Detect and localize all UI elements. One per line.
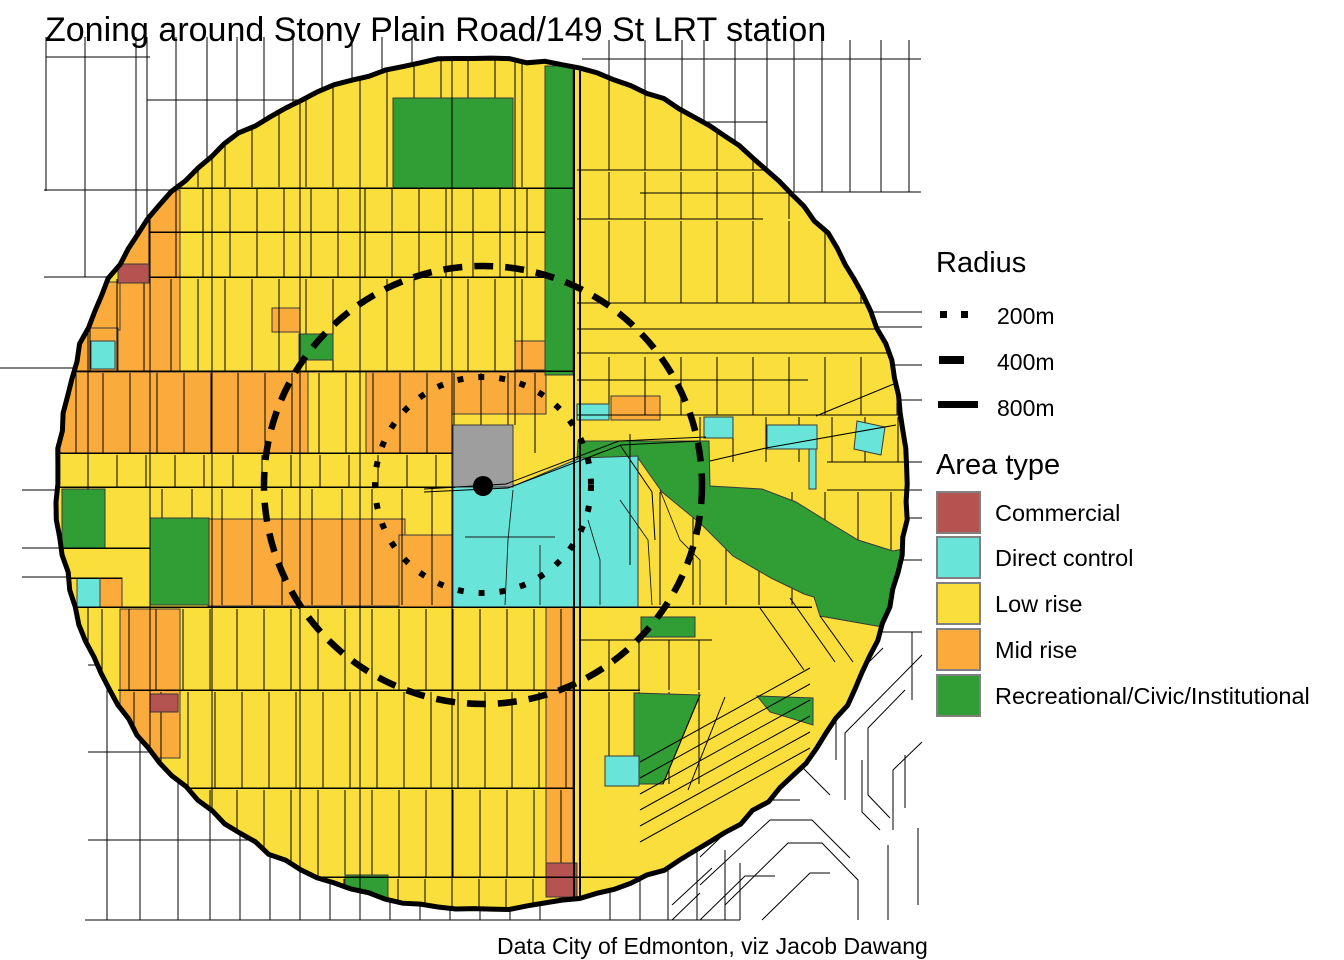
svg-text:Commercial: Commercial [995, 500, 1120, 526]
svg-text:Area type: Area type [936, 449, 1060, 481]
svg-text:Radius: Radius [936, 247, 1026, 279]
svg-text:200m: 200m [997, 303, 1055, 329]
svg-text:Recreational/Civic/Institution: Recreational/Civic/Institutional [995, 683, 1310, 709]
svg-text:Mid rise: Mid rise [995, 637, 1077, 663]
svg-text:Zoning around Stony Plain Road: Zoning around Stony Plain Road/149 St LR… [45, 11, 826, 49]
svg-text:Data City of Edmonton, viz Jac: Data City of Edmonton, viz Jacob Dawang [497, 933, 928, 959]
svg-text:Low rise: Low rise [995, 591, 1083, 617]
svg-text:Direct control: Direct control [995, 545, 1133, 571]
svg-text:800m: 800m [997, 395, 1055, 421]
svg-text:400m: 400m [997, 349, 1055, 375]
